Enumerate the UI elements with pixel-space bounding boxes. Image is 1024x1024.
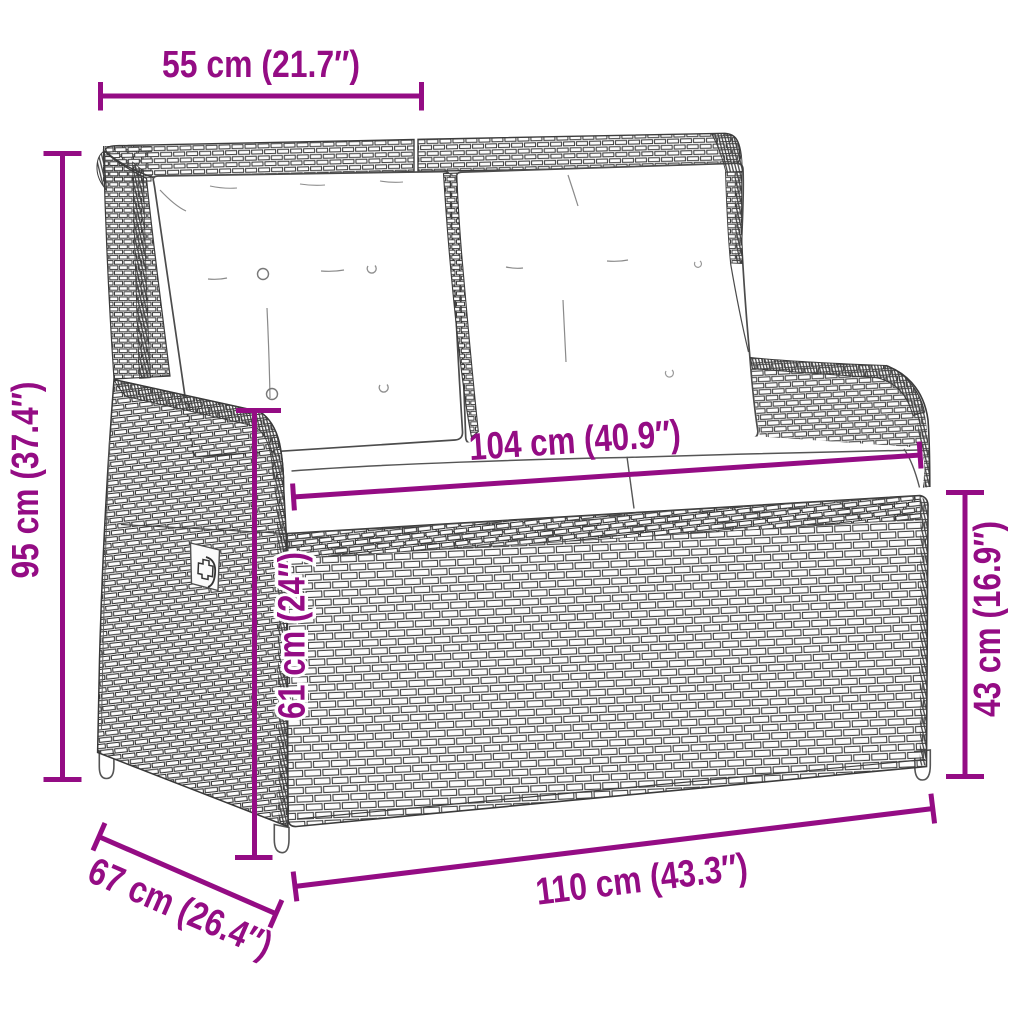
svg-text:43 cm (16.9″): 43 cm (16.9″) — [967, 521, 1009, 717]
svg-text:95 cm (37.4″): 95 cm (37.4″) — [5, 382, 47, 579]
svg-text:55 cm (21.7″): 55 cm (21.7″) — [162, 44, 360, 86]
svg-text:61 cm (24″): 61 cm (24″) — [272, 552, 314, 719]
